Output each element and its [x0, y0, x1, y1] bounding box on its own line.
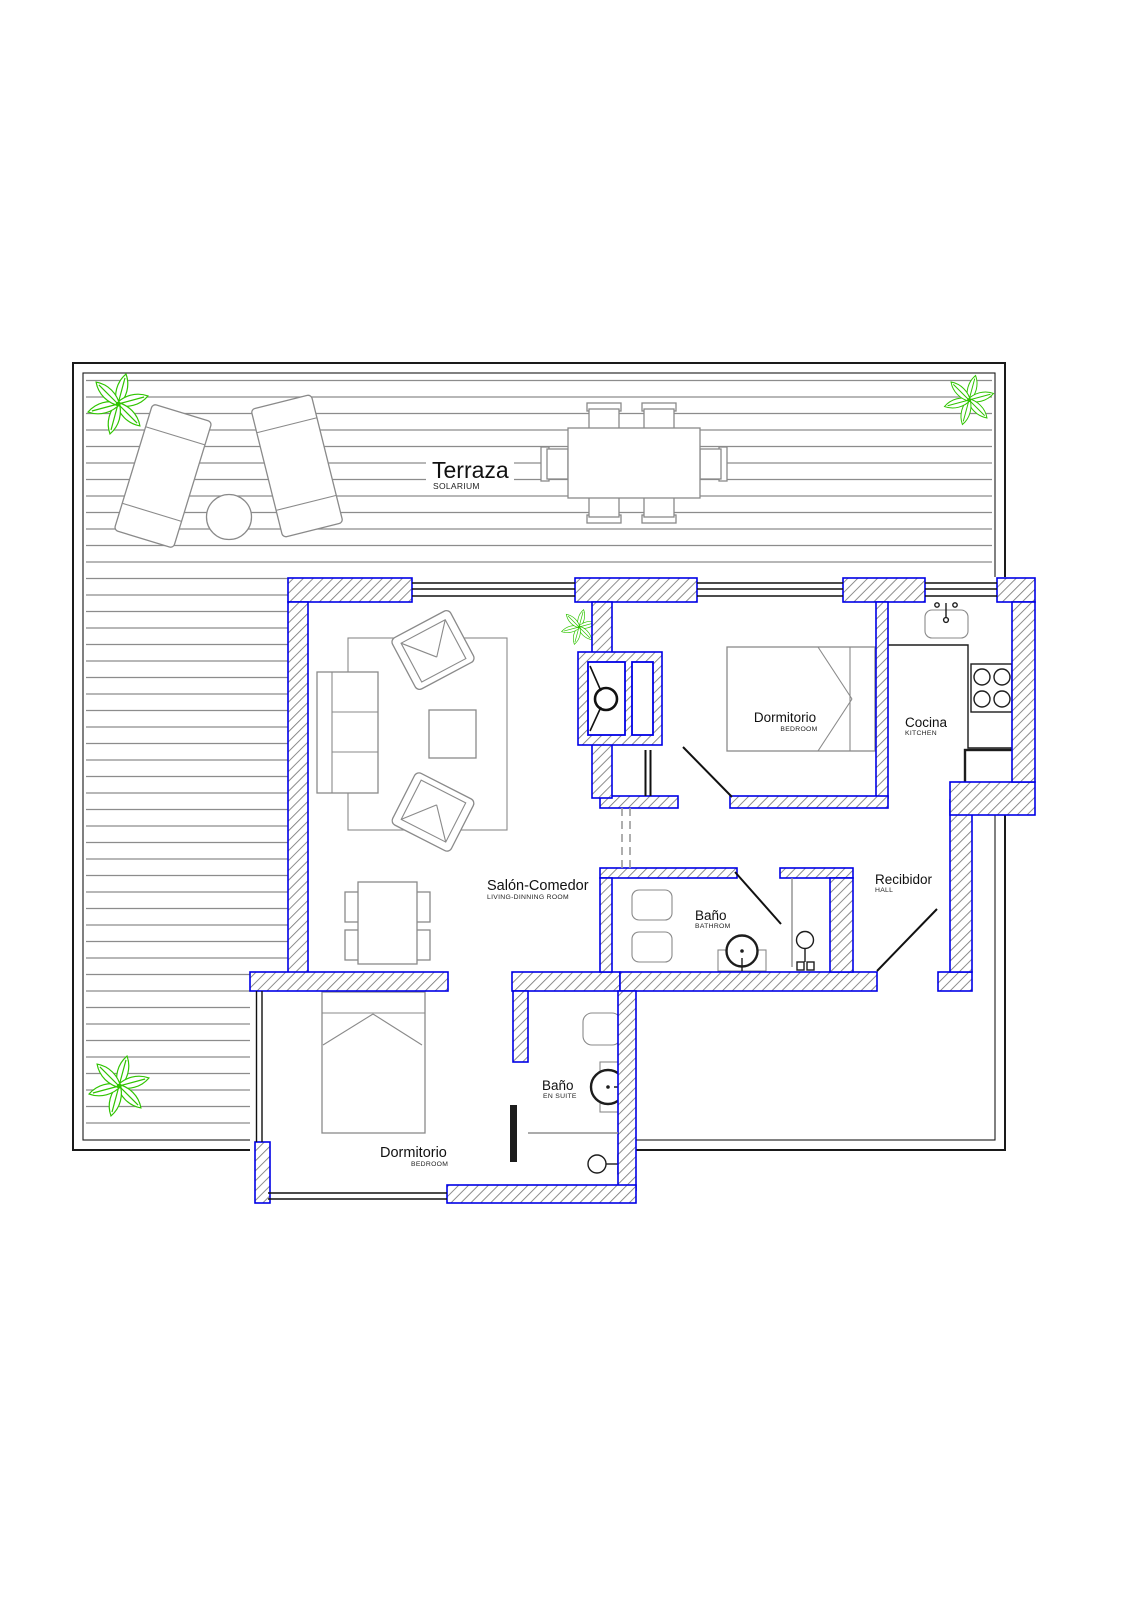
bathroom-sublabel: BATHROM: [695, 923, 731, 930]
hall-label: Recibidor: [875, 872, 933, 887]
floorplan-page: Terraza SOLARIUM Salón-Comedor LIVING-DI…: [0, 0, 1131, 1600]
wall-segment: [512, 972, 620, 991]
wall-segment: [592, 744, 612, 798]
wall-segment: [447, 1185, 636, 1203]
hall-sublabel: HALL: [875, 887, 893, 894]
wall-segment: [876, 602, 888, 798]
wall-segment: [575, 578, 697, 602]
floorplan-drawing: Terraza SOLARIUM Salón-Comedor LIVING-DI…: [0, 0, 1131, 1600]
vent-fan-icon: [595, 688, 617, 710]
wall-segment: [780, 868, 853, 878]
terrace-label: Terraza: [432, 457, 509, 483]
wall-segment: [843, 578, 925, 602]
wall-segment: [620, 972, 877, 991]
ensuite-sublabel: EN SUITE: [543, 1093, 577, 1100]
kitchen-sublabel: KITCHEN: [905, 730, 937, 737]
chair: [589, 496, 619, 517]
bathroom-label: Baño: [695, 908, 727, 923]
wall-segment: [513, 991, 528, 1062]
chair: [345, 930, 359, 960]
side-table: [207, 495, 252, 540]
chair: [345, 892, 359, 922]
bedroom1-furniture: [727, 647, 875, 751]
bedroom2-furniture: [322, 992, 425, 1133]
service-shaft-interior: [588, 662, 653, 735]
chair: [416, 930, 430, 960]
wall-segment: [950, 782, 1035, 815]
double-bed: [727, 647, 875, 751]
bedroom1-sublabel: BEDROOM: [780, 726, 817, 733]
terrace-sublabel: SOLARIUM: [433, 481, 480, 491]
chair: [700, 449, 721, 479]
wall-segment: [592, 602, 612, 654]
wall-segment: [938, 972, 972, 991]
stove: [971, 664, 1012, 712]
sofa: [317, 672, 378, 793]
wall-segment: [997, 578, 1035, 602]
kitchen-label: Cocina: [905, 715, 948, 730]
wall-segment: [255, 1142, 270, 1203]
wall-segment: [288, 602, 308, 973]
chair: [644, 496, 674, 517]
chair: [644, 409, 674, 430]
decking-left-band: [86, 565, 288, 975]
living-room-sublabel: LIVING-DINNING ROOM: [487, 894, 569, 901]
wall-segment: [830, 878, 853, 972]
wall-segment: [250, 972, 448, 991]
wall-segment: [1012, 602, 1035, 782]
wall-segment: [288, 578, 412, 602]
dining-table: [568, 428, 700, 498]
chair: [416, 892, 430, 922]
chair: [547, 449, 568, 479]
chair: [589, 409, 619, 430]
coffee-table: [429, 710, 476, 758]
wall-segment: [730, 796, 888, 808]
bedroom2-sublabel: BEDROOM: [411, 1161, 448, 1168]
dining-table: [358, 882, 417, 964]
indoor-dining-set: [345, 882, 430, 964]
wall-segment: [600, 878, 612, 972]
wall-segment: [950, 800, 972, 972]
wall-segment: [600, 868, 737, 878]
ensuite-label: Baño: [542, 1078, 574, 1093]
living-room-label: Salón-Comedor: [487, 878, 589, 894]
wall-segment: [618, 991, 636, 1190]
bedroom1-label: Dormitorio: [754, 710, 816, 725]
shower-screen: [510, 1105, 517, 1162]
bedroom2-label: Dormitorio: [380, 1145, 447, 1161]
